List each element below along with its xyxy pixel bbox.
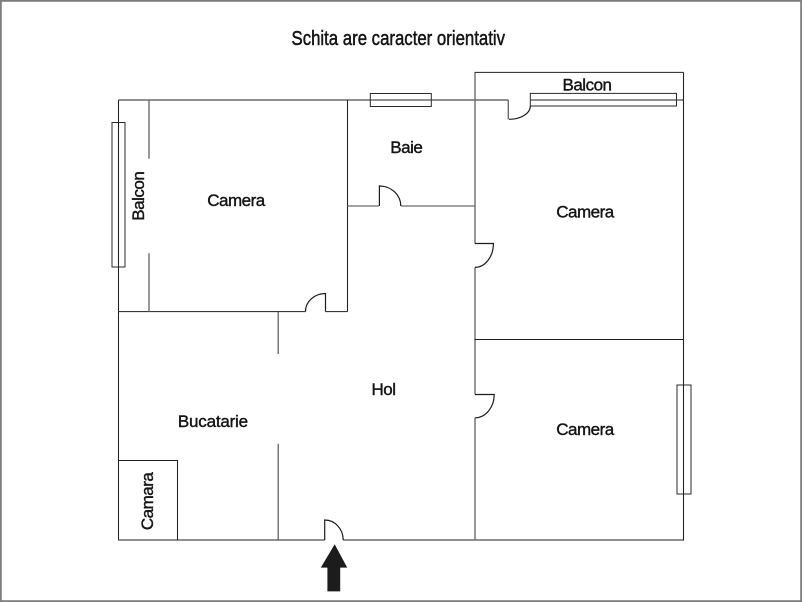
- svg-text:Baie: Baie: [390, 138, 422, 157]
- svg-text:Hol: Hol: [371, 380, 395, 399]
- svg-text:Balcon: Balcon: [563, 75, 612, 94]
- svg-text:Schita are caracter orientativ: Schita are caracter orientativ: [292, 27, 506, 50]
- svg-text:Camara: Camara: [138, 472, 157, 531]
- svg-text:Balcon: Balcon: [129, 172, 148, 221]
- svg-text:Bucatarie: Bucatarie: [178, 412, 248, 431]
- svg-text:Camera: Camera: [556, 202, 615, 221]
- svg-text:Camera: Camera: [207, 191, 266, 210]
- svg-text:Camera: Camera: [556, 420, 615, 439]
